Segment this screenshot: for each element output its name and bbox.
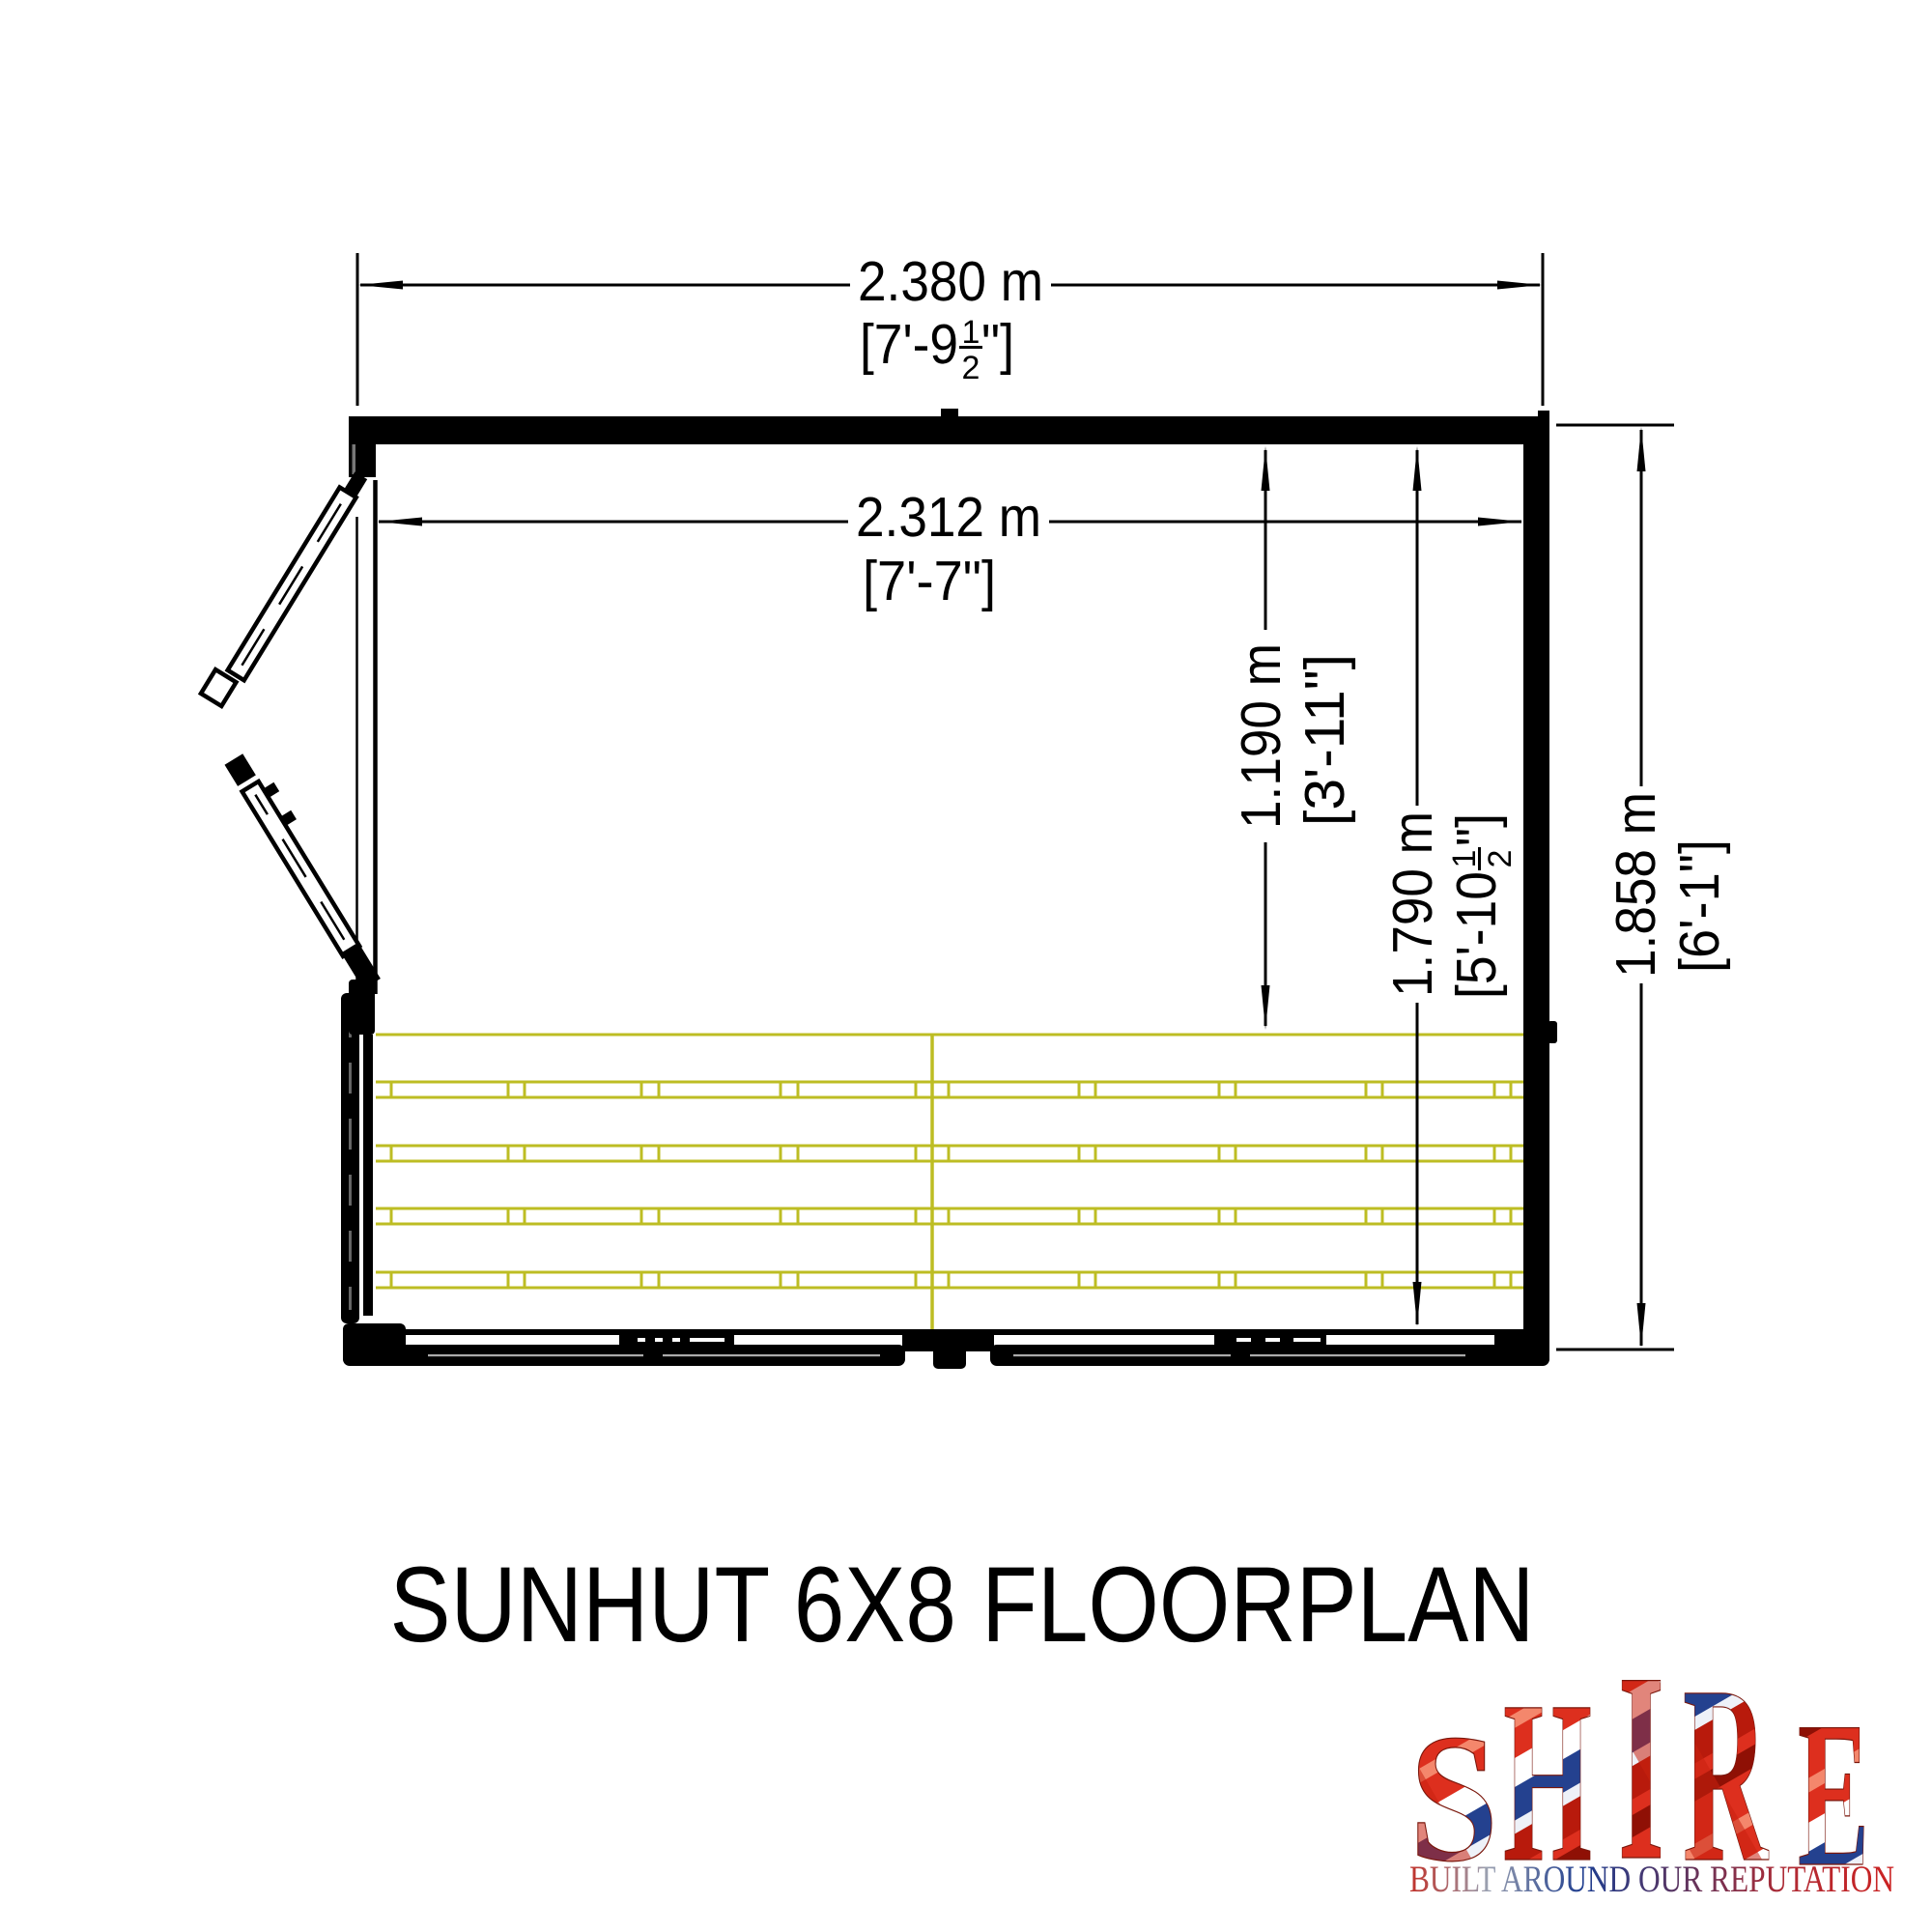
svg-text:2.380 m: 2.380 m — [858, 250, 1043, 313]
svg-text:[7'-9: [7'-9 — [860, 313, 958, 376]
svg-text:[6'-1"]: [6'-1"] — [1668, 839, 1731, 973]
svg-text:SUNHUT 6X8 FLOORPLAN: SUNHUT 6X8 FLOORPLAN — [390, 1545, 1535, 1664]
svg-text:"]: "] — [1445, 813, 1508, 846]
svg-text:BUILT AROUND OUR REPUTATION: BUILT AROUND OUR REPUTATION — [1409, 1859, 1894, 1900]
svg-text:[3'-11"]: [3'-11"] — [1293, 654, 1356, 826]
svg-text:2.312 m: 2.312 m — [856, 486, 1041, 549]
svg-text:1: 1 — [1446, 850, 1483, 868]
svg-text:[7'-7"]: [7'-7"] — [863, 550, 996, 612]
svg-text:"]: "] — [981, 313, 1014, 376]
svg-text:1.190 m: 1.190 m — [1230, 643, 1293, 829]
svg-text:2: 2 — [1482, 850, 1519, 868]
svg-text:1.858 m: 1.858 m — [1605, 792, 1667, 978]
svg-text:[5'-10: [5'-10 — [1445, 871, 1508, 999]
svg-text:2: 2 — [962, 350, 980, 386]
svg-text:1: 1 — [962, 314, 980, 351]
svg-text:1.790 m: 1.790 m — [1381, 811, 1444, 997]
